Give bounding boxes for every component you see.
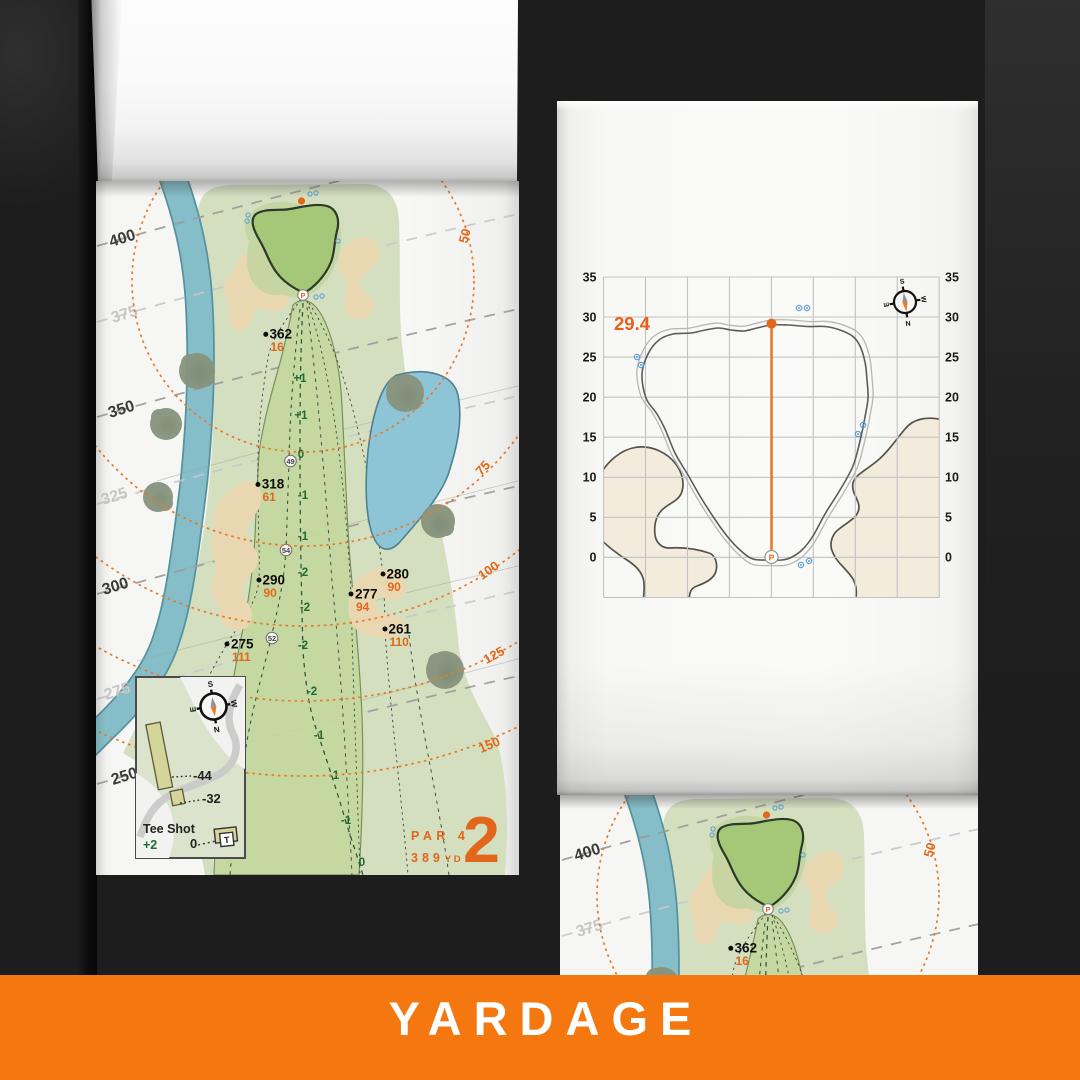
svg-text:10: 10	[583, 471, 597, 485]
svg-text:15: 15	[583, 431, 597, 445]
svg-text:W: W	[919, 296, 927, 304]
svg-text:29.4: 29.4	[614, 313, 651, 334]
svg-text:5: 5	[590, 511, 597, 525]
svg-text:E: E	[883, 301, 891, 307]
svg-text:20: 20	[583, 391, 597, 405]
svg-text:25: 25	[583, 351, 597, 365]
svg-text:N: N	[905, 320, 911, 328]
svg-text:25: 25	[945, 351, 959, 365]
svg-text:S: S	[899, 278, 905, 286]
svg-text:P: P	[769, 553, 775, 563]
svg-text:15: 15	[945, 431, 959, 445]
svg-text:5: 5	[945, 511, 952, 525]
svg-text:35: 35	[945, 271, 959, 285]
svg-text:30: 30	[945, 311, 959, 325]
svg-text:0: 0	[945, 551, 952, 565]
svg-text:20: 20	[945, 391, 959, 405]
svg-text:35: 35	[583, 271, 597, 285]
svg-text:30: 30	[583, 311, 597, 325]
svg-text:10: 10	[945, 471, 959, 485]
svg-text:0: 0	[590, 551, 597, 565]
